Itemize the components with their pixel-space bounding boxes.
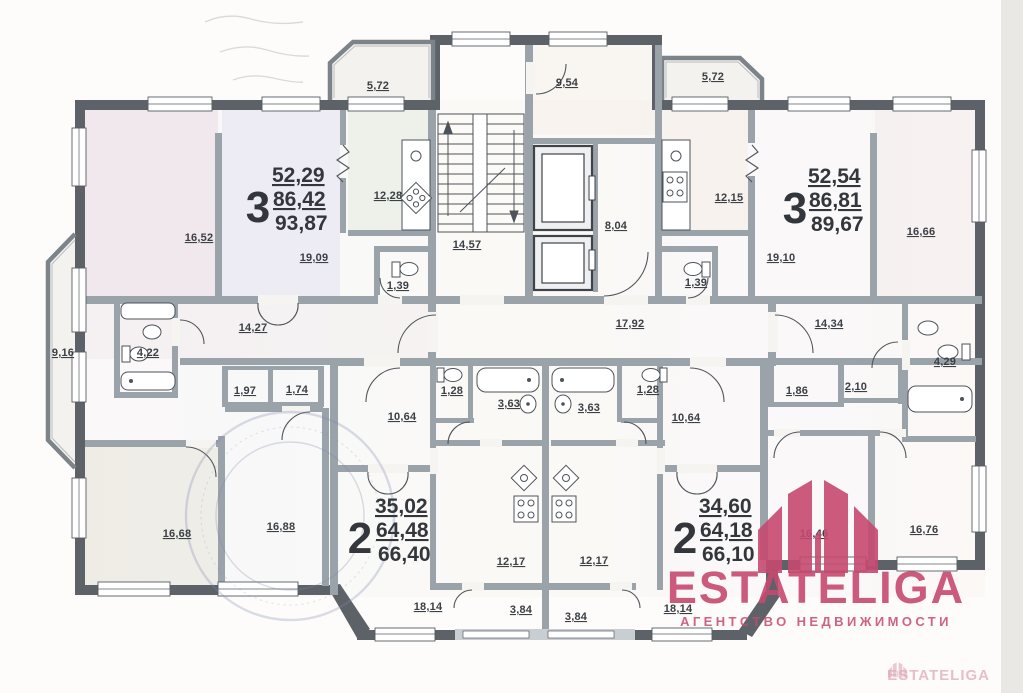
apartment-living-area: 34,60 — [699, 495, 752, 518]
room-area-label: 9,54 — [556, 77, 579, 89]
elevator-car-icon — [542, 243, 584, 283]
room-area-label: 4,29 — [934, 356, 956, 368]
room-area-label: 1,39 — [685, 277, 707, 289]
room-area-label: 1,39 — [387, 280, 409, 292]
apartment-area: 86,42 — [273, 188, 326, 211]
elevators — [534, 146, 595, 290]
stove-icon — [552, 496, 576, 522]
room-area-label: 12,28 — [374, 190, 403, 202]
room-area-label: 3,84 — [510, 604, 533, 616]
room-area-label: 1,28 — [637, 384, 659, 396]
room-area-label: 12,15 — [715, 192, 744, 204]
apartment-total-area: 66,40 — [378, 543, 431, 566]
watermark-brand-text: ESTATELIGA — [667, 562, 965, 613]
apartment-living-area: 35,02 — [375, 495, 428, 518]
room-area-label: 1,28 — [441, 385, 463, 397]
room-area-label: 4,22 — [137, 347, 159, 359]
room-area-label: 14,34 — [815, 318, 844, 330]
sink-icon — [143, 325, 161, 339]
room-area-label: 8,04 — [605, 220, 628, 232]
room-area-label: 9,16 — [52, 347, 74, 359]
apartment-total-area: 89,67 — [811, 213, 864, 236]
toilet-icon — [962, 344, 970, 360]
toilet-icon — [437, 368, 444, 382]
sink-icon — [918, 321, 938, 335]
apartment-area: 64,48 — [376, 519, 429, 542]
floor-plan-scan: 5,72 9,54 5,72 16,52 12,28 19,09 1,39 14… — [0, 0, 1023, 693]
room-area-label: 3,63 — [498, 398, 520, 410]
room-area-label: 16,66 — [907, 226, 936, 238]
watermark-corner-text: ESTATELIGA — [887, 667, 990, 684]
toilet-icon — [122, 346, 130, 362]
room-area-label: 1,97 — [234, 385, 256, 397]
room-area-label: 16,76 — [910, 524, 939, 536]
stove-icon — [663, 172, 687, 202]
room-area-label: 17,92 — [616, 318, 645, 330]
apartment-living-area: 52,29 — [272, 164, 325, 187]
kitchen-sink-icon — [411, 151, 421, 161]
toilet-icon — [392, 262, 400, 277]
room-area-label: 14,27 — [239, 322, 268, 334]
room-area-label: 18,14 — [414, 601, 443, 613]
scan-edge — [1001, 0, 1023, 693]
room-area-label: 5,72 — [367, 80, 389, 92]
room-area-label: 12,17 — [580, 555, 609, 567]
room-area-label: 12,17 — [497, 556, 526, 568]
kitchen-sink-icon — [671, 151, 681, 161]
bathtub-icon — [121, 303, 175, 319]
apartment-number: 3 — [246, 183, 270, 232]
room-area-label: 19,10 — [767, 252, 796, 264]
room-area-label: 5,72 — [702, 71, 724, 83]
room-area-label: 3,84 — [565, 611, 588, 623]
room-area-label: 14,57 — [453, 239, 482, 251]
room-area-label: 10,64 — [388, 411, 417, 423]
apartment-total-area: 93,87 — [275, 212, 328, 235]
room-area-label: 10,64 — [672, 412, 701, 424]
elevator-car-icon — [542, 154, 584, 222]
room-area-label: 16,52 — [185, 232, 214, 244]
apartment-living-area: 52,54 — [808, 165, 861, 188]
apartment-area: 86,81 — [809, 189, 862, 212]
floor-plan-drawing: 5,72 9,54 5,72 16,52 12,28 19,09 1,39 14… — [0, 0, 1023, 693]
watermark-tagline-text: АГЕНТСТВО НЕДВИЖИМОСТИ — [680, 614, 952, 629]
room-area-label: 16,88 — [267, 521, 296, 533]
apartment-area: 64,18 — [700, 519, 753, 542]
staircase — [438, 114, 524, 232]
room-area-label: 3,63 — [578, 402, 600, 414]
toilet-icon — [702, 262, 710, 277]
toilet-icon — [660, 368, 667, 382]
room-area-label: 1,74 — [286, 384, 309, 396]
room-area-label: 2,10 — [845, 381, 867, 393]
stove-icon — [514, 496, 538, 522]
apartment-number: 2 — [348, 514, 372, 563]
room-area-label: 16,68 — [163, 528, 192, 540]
apartment-number: 3 — [783, 184, 807, 233]
room-area-label: 1,86 — [786, 385, 808, 397]
room-area-label: 19,09 — [300, 252, 329, 264]
apartment-number: 2 — [673, 514, 697, 563]
